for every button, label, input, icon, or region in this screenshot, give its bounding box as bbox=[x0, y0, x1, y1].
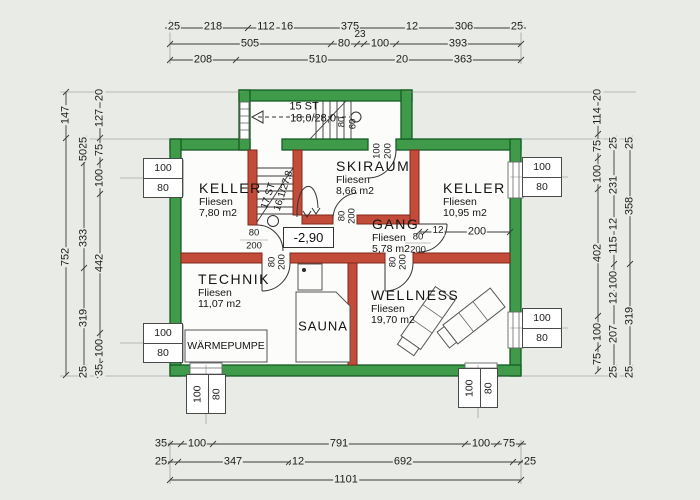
window-width: 100 bbox=[533, 313, 551, 324]
window-size-box: 100 80 bbox=[143, 323, 183, 363]
dim-label: 347 bbox=[223, 457, 243, 468]
dim-label: 1101 bbox=[333, 475, 359, 486]
divider bbox=[523, 328, 561, 329]
dim-label: 12 bbox=[291, 457, 305, 468]
dim-label: 100 bbox=[609, 270, 620, 290]
dim-label: 12 bbox=[405, 22, 419, 33]
window-size-box: 100 80 bbox=[458, 368, 498, 408]
dim-label: 100 bbox=[187, 439, 207, 450]
dim-label: 218 bbox=[203, 22, 223, 33]
dim-label: 231 bbox=[609, 175, 620, 195]
dim-label: 505 bbox=[240, 39, 260, 50]
dim-label: 333 bbox=[79, 228, 90, 248]
divider bbox=[144, 178, 182, 179]
dim-label: 75 bbox=[593, 352, 604, 366]
stove-dot bbox=[302, 268, 306, 272]
room-name: TECHNIK bbox=[198, 272, 270, 288]
dim-label: 25 bbox=[625, 136, 636, 150]
room-name: WELLNESS bbox=[371, 288, 459, 304]
dim-label: 50 bbox=[79, 148, 90, 162]
room-sauna-label: SAUNA bbox=[298, 320, 348, 333]
window-height: 80 bbox=[536, 333, 548, 344]
dim-label: 100 bbox=[370, 39, 390, 50]
door-size: 100 bbox=[372, 143, 382, 159]
dim-label: 75 bbox=[502, 439, 516, 450]
window-width: 100 bbox=[154, 163, 172, 174]
dim-label: 207 bbox=[609, 324, 620, 344]
window-width: 100 bbox=[464, 379, 475, 397]
dim-label: 75 bbox=[593, 139, 604, 153]
dim-label: 393 bbox=[448, 39, 468, 50]
window-width: 100 bbox=[154, 328, 172, 339]
divider bbox=[523, 177, 561, 178]
dim-label: 100 bbox=[471, 439, 491, 450]
dim-label: 25 bbox=[609, 365, 620, 379]
divider bbox=[480, 369, 481, 407]
dim-label: 20 bbox=[593, 88, 604, 102]
stair-rail-size: 80 bbox=[337, 117, 347, 128]
stair-upper-steps: 15 ST bbox=[289, 102, 318, 113]
dim-label: 25 bbox=[79, 365, 90, 379]
dim-label: 12 bbox=[609, 217, 620, 231]
room-area: 7,80 m2 bbox=[199, 208, 262, 220]
room-keller-2: KELLER Fliesen 10,95 m2 bbox=[443, 181, 506, 220]
room-area: 8,66 m2 bbox=[336, 186, 410, 198]
dim-label: 147 bbox=[61, 105, 72, 125]
dim-label: 100 bbox=[593, 322, 604, 342]
door-size: 200 bbox=[383, 143, 393, 159]
room-area: 11,07 m2 bbox=[198, 299, 270, 311]
dim-label: 25 bbox=[510, 22, 524, 33]
window-height: 80 bbox=[157, 348, 169, 359]
dim-label: 319 bbox=[79, 308, 90, 328]
floor-plan-page: -2,90 KELLER Fliesen 7,80 m2 SKIRAUM Fli… bbox=[0, 0, 700, 500]
stove-square bbox=[298, 264, 322, 290]
door-size: 80 bbox=[249, 228, 260, 238]
door-size: 80 bbox=[413, 232, 424, 242]
window-width: 100 bbox=[192, 385, 203, 403]
door-size: 200 bbox=[277, 254, 287, 270]
stair-upper-tread: 18,0/28,0 bbox=[290, 114, 336, 125]
door-size: 200 bbox=[410, 245, 426, 255]
door-size: 200 bbox=[398, 254, 408, 270]
dim-label: 112 bbox=[256, 22, 276, 33]
door-size: 200 bbox=[246, 241, 262, 251]
dim-label: 23 bbox=[353, 30, 366, 40]
dim-label: 200 bbox=[467, 227, 487, 238]
dim-label: 752 bbox=[61, 247, 72, 267]
room-skiraum: SKIRAUM Fliesen 8,66 m2 bbox=[336, 159, 410, 198]
dim-label: 791 bbox=[329, 439, 349, 450]
dim-label: 100 bbox=[95, 168, 106, 188]
room-area: 10,95 m2 bbox=[443, 208, 506, 220]
dim-label: 25 bbox=[167, 22, 181, 33]
window-width: 100 bbox=[533, 162, 551, 173]
room-name: SKIRAUM bbox=[336, 159, 410, 175]
dim-label: 306 bbox=[454, 22, 474, 33]
room-keller-1: KELLER Fliesen 7,80 m2 bbox=[199, 181, 262, 220]
dim-label: 114 bbox=[593, 106, 604, 126]
window-height: 80 bbox=[157, 183, 169, 194]
dim-label: 16 bbox=[280, 22, 294, 33]
room-technik: TECHNIK Fliesen 11,07 m2 bbox=[198, 272, 270, 311]
dim-label: 25 bbox=[523, 457, 537, 468]
divider bbox=[144, 343, 182, 344]
window-size-box: 100 80 bbox=[186, 374, 226, 414]
dim-label: 20 bbox=[95, 88, 106, 102]
room-heatpump-label: WÄRMEPUMPE bbox=[187, 341, 265, 352]
dim-label: 127 bbox=[95, 108, 106, 128]
dim-label: 510 bbox=[308, 55, 328, 66]
dim-label: 100 bbox=[593, 164, 604, 184]
dim-label: 12 bbox=[431, 226, 444, 236]
dim-label: 12 bbox=[609, 291, 620, 305]
dim-label: 25 bbox=[625, 365, 636, 379]
dim-label: 80 bbox=[337, 39, 351, 50]
dim-label: 692 bbox=[393, 457, 413, 468]
dim-label: 75 bbox=[95, 143, 106, 157]
dim-label: 442 bbox=[95, 253, 106, 273]
divider bbox=[208, 375, 209, 413]
dim-label: 115 bbox=[609, 235, 620, 255]
stair-rail-size: 60 bbox=[348, 119, 358, 130]
dim-label: 35 bbox=[154, 439, 168, 450]
dim-label: 363 bbox=[453, 55, 473, 66]
room-area: 19,70 m2 bbox=[371, 315, 459, 327]
door-size: 200 bbox=[347, 208, 357, 224]
room-name: KELLER bbox=[199, 181, 262, 197]
dim-label: 25 bbox=[154, 457, 168, 468]
room-wellness: WELLNESS Fliesen 19,70 m2 bbox=[371, 288, 459, 327]
dim-label: 319 bbox=[625, 306, 636, 326]
window-height: 80 bbox=[536, 182, 548, 193]
window-size-box: 100 80 bbox=[143, 158, 183, 198]
room-name: KELLER bbox=[443, 181, 506, 197]
level-value: -2,90 bbox=[294, 230, 324, 245]
dim-label: 100 bbox=[95, 338, 106, 358]
window-size-box: 100 80 bbox=[522, 308, 562, 348]
dim-label: 402 bbox=[593, 243, 604, 263]
window-height: 80 bbox=[212, 388, 223, 400]
dim-label: 35 bbox=[95, 363, 106, 377]
dim-label: 25 bbox=[609, 136, 620, 150]
dim-label: 208 bbox=[193, 55, 213, 66]
window-size-box: 100 80 bbox=[522, 157, 562, 197]
dim-label: 20 bbox=[395, 55, 409, 66]
level-marker: -2,90 bbox=[283, 227, 334, 248]
dim-label: 358 bbox=[625, 196, 636, 216]
window-height: 80 bbox=[484, 382, 495, 394]
